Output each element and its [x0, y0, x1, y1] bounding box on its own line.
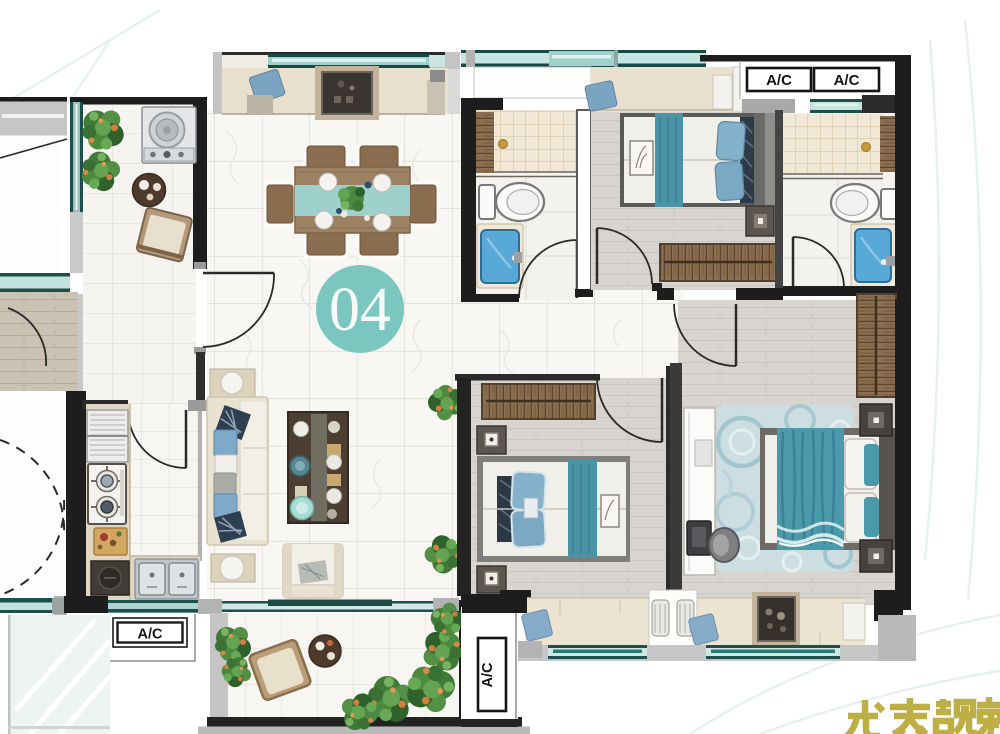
svg-text:A/C: A/C [138, 627, 164, 643]
svg-text:A/C: A/C [480, 662, 496, 688]
svg-text:A/C: A/C [834, 72, 860, 89]
svg-text:A/C: A/C [766, 72, 792, 89]
svg-text:04: 04 [329, 276, 391, 344]
